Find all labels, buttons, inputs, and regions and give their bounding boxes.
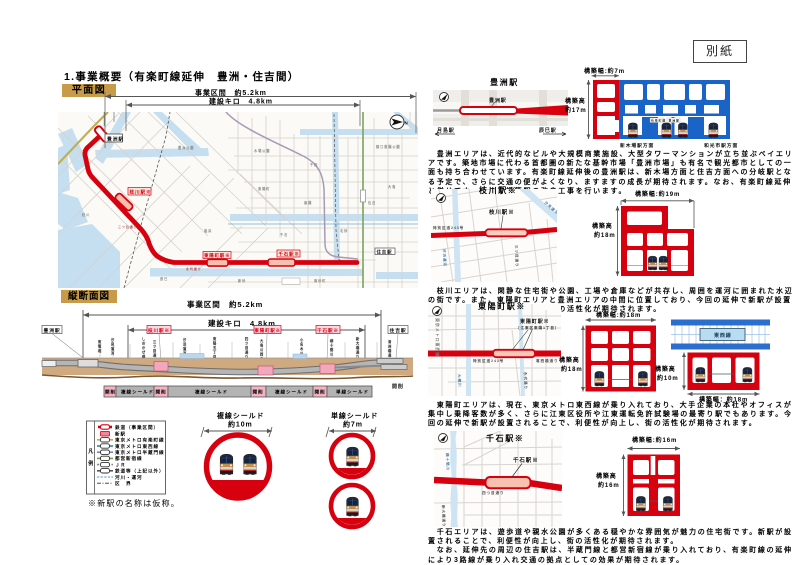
svg-text:建設キロ 4.8km: 建設キロ 4.8km [209, 97, 273, 106]
svg-text:ＪＲ: ＪＲ [115, 461, 126, 467]
svg-text:新大橋通り: 新大橋通り [441, 505, 447, 527]
svg-text:構築幅:約7m: 構築幅:約7m [584, 67, 625, 75]
svg-text:複線シールド: 複線シールド [216, 411, 264, 420]
svg-text:住吉駅: 住吉駅 [377, 248, 393, 255]
svg-text:東陽町駅※: 東陽町駅※ [520, 318, 550, 325]
svg-text:東陽五丁目: 東陽五丁目 [212, 336, 217, 359]
svg-text:辰巳駅: 辰巳駅 [539, 127, 557, 134]
svg-text:豊洲駅: 豊洲駅 [44, 327, 61, 334]
svg-text:大横川: 大横川 [457, 374, 462, 388]
svg-text:横十間川: 横十間川 [445, 453, 451, 471]
svg-text:鉄道等（上記以外）: 鉄道等（上記以外） [115, 468, 164, 475]
svg-text:大島: 大島 [388, 184, 396, 189]
svg-text:約18m: 約18m [561, 365, 583, 373]
svg-text:単線シールド: 単線シールド [336, 389, 369, 396]
svg-text:枝川: 枝川 [81, 212, 90, 217]
svg-text:構築高: 構築高 [596, 472, 617, 480]
svg-text:扇橋: 扇橋 [304, 200, 312, 205]
svg-text:約17m: 約17m [565, 106, 587, 114]
svg-text:塩浜: 塩浜 [204, 228, 212, 233]
svg-text:南砂町: 南砂町 [314, 278, 326, 283]
svg-text:構築幅:約18m: 構築幅:約18m [596, 311, 641, 319]
svg-text:四つ目通り: 四つ目通り [482, 490, 504, 495]
svg-text:区 界: 区 界 [115, 480, 131, 487]
svg-text:葛西橋通り: 葛西橋通り [535, 358, 558, 363]
svg-text:特別区道243号: 特別区道243号 [473, 358, 504, 363]
svg-text:河川・運河: 河川・運河 [114, 474, 142, 481]
svg-text:約7m: 約7m [343, 420, 363, 429]
svg-text:豊洲駅: 豊洲駅 [489, 97, 507, 104]
svg-text:汐浜運河: 汐浜運河 [182, 337, 187, 356]
svg-text:例: 例 [88, 460, 94, 467]
svg-text:北砂: 北砂 [340, 228, 348, 233]
svg-text:東陽町駅※: 東陽町駅※ [204, 252, 230, 259]
svg-text:構築高: 構築高 [592, 222, 613, 230]
svg-text:複線シールド: 複線シールド [274, 389, 308, 396]
svg-text:汐見運河: 汐見運河 [110, 337, 115, 356]
svg-text:構築幅:約19m: 構築幅:約19m [635, 190, 680, 198]
svg-text:四ツ目通り: 四ツ目通り [244, 336, 249, 359]
svg-text:しおかぜ橋: しおかぜ橋 [141, 336, 146, 359]
svg-text:月島駅: 月島駅 [436, 127, 455, 134]
svg-text:東陽町駅※: 東陽町駅※ [255, 327, 281, 334]
svg-text:三ツ目通り: 三ツ目通り [118, 224, 138, 229]
svg-text:〔江東区東陽1丁目〕: 〔江東区東陽1丁目〕 [516, 325, 559, 330]
svg-text:永代通り: 永代通り [185, 266, 202, 271]
svg-text:開削: 開削 [105, 389, 116, 396]
svg-text:豊洲駅: 豊洲駅 [669, 118, 680, 123]
svg-text:構築高: 構築高 [565, 97, 586, 105]
svg-text:千田: 千田 [310, 162, 318, 167]
svg-text:約18m: 約18m [594, 231, 616, 239]
svg-text:約16m: 約16m [598, 481, 620, 489]
svg-text:新砂: 新砂 [238, 278, 246, 283]
svg-text:単線シールド: 単線シールド [331, 411, 378, 420]
svg-text:住吉: 住吉 [368, 200, 376, 205]
svg-text:有楽町線: 有楽町線 [651, 118, 666, 123]
svg-text:凡: 凡 [88, 448, 94, 455]
svg-text:枝川駅※: 枝川駅※ [488, 208, 515, 216]
svg-text:開削: 開削 [392, 383, 404, 390]
svg-text:都営新宿線: 都営新宿線 [114, 455, 142, 462]
svg-text:特別区道243号: 特別区道243号 [433, 225, 464, 230]
svg-text:鉄道（事業区間）: 鉄道（事業区間） [115, 424, 159, 431]
svg-text:東京メトロ東西線: 東京メトロ東西線 [115, 443, 159, 450]
svg-text:東京メトロ東西線: 東京メトロ東西線 [435, 318, 441, 357]
svg-text:千石駅※: 千石駅※ [513, 456, 539, 464]
svg-text:新大橋通り: 新大橋通り [355, 336, 360, 359]
svg-text:小名木川: 小名木川 [299, 337, 304, 356]
svg-text:新木場駅方面: 新木場駅方面 [620, 142, 654, 149]
svg-text:住吉駅: 住吉駅 [390, 327, 407, 334]
svg-text:千石: 千石 [280, 232, 288, 237]
svg-text:枝川駅※: 枝川駅※ [147, 327, 170, 334]
svg-text:複線シールド: 複線シールド [120, 389, 154, 396]
svg-text:構築幅:約16m: 構築幅:約16m [632, 436, 677, 444]
svg-text:東陽町: 東陽町 [258, 186, 270, 191]
svg-text:約10m: 約10m [228, 420, 253, 429]
svg-text:東西線: 東西線 [714, 332, 732, 339]
svg-text:三ツ目通り: 三ツ目通り [514, 245, 520, 268]
svg-text:約10m: 約10m [657, 374, 679, 382]
svg-text:東京メトロ半蔵門線: 東京メトロ半蔵門線 [115, 449, 164, 456]
svg-text:開削: 開削 [253, 389, 264, 396]
svg-text:開削: 開削 [315, 389, 326, 396]
svg-text:千石駅※: 千石駅※ [317, 327, 339, 334]
svg-text:新駅: 新駅 [115, 430, 126, 437]
svg-text:和光市駅方面: 和光市駅方面 [703, 142, 738, 149]
svg-text:構築高: 構築高 [559, 356, 580, 364]
svg-text:辰巳: 辰巳 [159, 276, 168, 281]
svg-text:千石駅※: 千石駅※ [279, 251, 300, 258]
svg-text:東京メトロ有楽町線: 東京メトロ有楽町線 [115, 437, 164, 444]
svg-text:東電堀: 東電堀 [97, 339, 102, 353]
svg-text:事業区間 約5.2km: 事業区間 約5.2km [187, 299, 263, 309]
svg-text:開削: 開削 [156, 389, 167, 396]
svg-text:汐浜運河: 汐浜運河 [442, 249, 448, 267]
svg-text:横十間川: 横十間川 [329, 338, 334, 357]
svg-text:事業区間 約5.2km: 事業区間 約5.2km [195, 88, 267, 97]
svg-text:枝川駅※: 枝川駅※ [129, 188, 152, 195]
svg-text:構築高: 構築高 [655, 365, 676, 373]
svg-text:複線シールド: 複線シールド [194, 389, 228, 396]
svg-text:永代通り: 永代通り [523, 371, 529, 390]
